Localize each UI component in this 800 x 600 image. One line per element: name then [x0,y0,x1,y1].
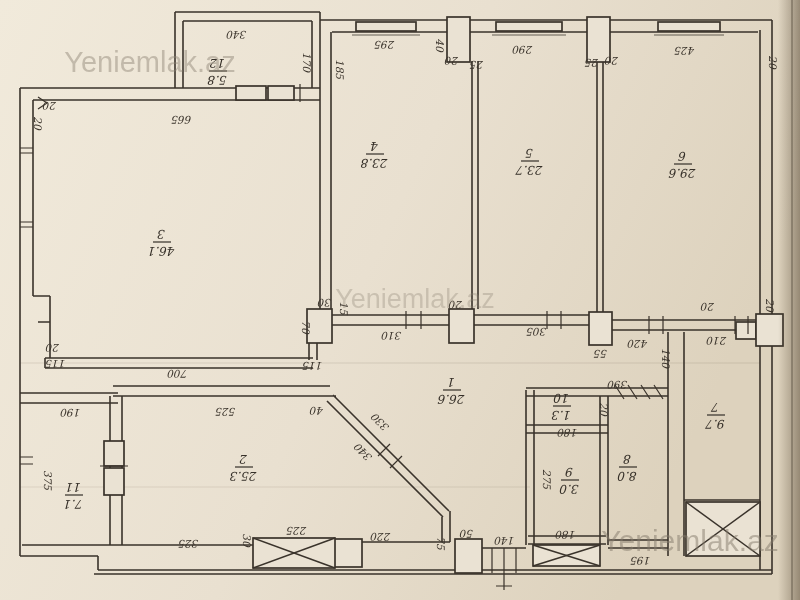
pillar-entrance [455,539,482,573]
door-room12-a [236,86,266,100]
dim-label-700: 700 [167,368,188,380]
svg-text:11: 11 [66,480,81,494]
dim-label-75: 75 [435,536,447,551]
dim-label-20: 20 [598,402,610,417]
dim-label-55: 55 [593,348,608,360]
dim-label-305: 305 [526,326,547,338]
svg-text:4: 4 [371,139,379,153]
dim-label-220: 220 [370,531,391,543]
pillar-corridor-3 [589,312,612,345]
dim-label-170: 170 [301,52,313,73]
dim-label-115: 115 [302,360,323,372]
door-bottom-wall [334,539,362,567]
dim-label-420: 420 [627,338,648,350]
door-room12-b [268,86,294,100]
dim-label-20: 20 [767,55,779,70]
dim-label-275: 275 [541,469,553,490]
dim-label-180: 180 [557,427,578,439]
window-room4 [356,22,416,31]
scanned-floor-plan: 126.6225.3346.1423.8523.7629.679.788.093… [0,0,800,600]
svg-text:8.0: 8.0 [617,469,637,483]
dim-label-310: 310 [381,330,402,342]
dim-label-325: 325 [178,538,199,550]
dim-label-40: 40 [309,405,324,417]
dim-label-20: 20 [45,342,60,354]
window-room5 [496,22,562,31]
dim-label-20: 20 [700,301,715,313]
dim-label-20: 20 [604,55,619,67]
dim-label-115: 115 [45,358,66,370]
dim-label-140: 140 [660,348,672,369]
svg-text:25.3: 25.3 [229,469,257,483]
dim-label-20: 20 [42,100,57,112]
room-label-11: 117.1 [64,480,83,511]
dim-label-185: 185 [334,59,346,80]
watermark-bottom-right: Yeniemlak.az [601,524,778,557]
svg-text:46.1: 46.1 [149,244,176,258]
dim-label-180: 180 [555,529,576,541]
dim-label-295: 295 [374,39,395,51]
svg-text:23.8: 23.8 [360,156,388,170]
dim-label-30: 30 [317,297,332,309]
dim-label-390: 390 [607,379,628,391]
svg-text:29.6: 29.6 [668,166,696,180]
watermark-center: Yeniemlak.az [335,284,495,314]
dim-label-340: 340 [226,29,247,41]
page-edge-shadow [778,0,800,600]
dim-label-375: 375 [42,470,54,491]
svg-text:7.1: 7.1 [64,497,83,511]
dim-label-225: 225 [286,525,307,537]
shaft-box-bottom-left [253,538,335,568]
dim-label-30: 30 [241,533,253,548]
dim-label-210: 210 [706,335,727,347]
dim-label-190: 190 [60,407,81,419]
window-room6 [658,22,720,31]
shaft-box-bottom-center [533,545,600,566]
dim-label-50: 50 [459,528,474,540]
dim-label-20: 20 [444,55,459,67]
dim-label-70: 70 [300,320,312,335]
door-room11-a [104,441,124,466]
dim-label-140: 140 [494,535,515,547]
dim-label-425: 425 [674,45,695,57]
svg-text:26.6: 26.6 [437,392,465,406]
dim-label-665: 665 [171,114,192,126]
dim-label-20: 20 [32,116,44,131]
dim-label-525: 525 [215,406,236,418]
svg-text:3.0: 3.0 [559,482,579,496]
pillar-corridor-2 [449,309,474,343]
dim-label-20: 20 [764,298,776,313]
dim-label-25: 25 [584,57,599,69]
svg-text:1: 1 [448,375,456,389]
svg-text:9.7: 9.7 [705,417,725,431]
svg-text:23.7: 23.7 [515,163,543,177]
watermark-top-left: Yeniemlak.az [64,46,235,78]
dim-label-25: 25 [469,59,484,71]
door-room11-b [104,468,124,495]
door-leaf-right [736,322,756,339]
svg-text:1.3: 1.3 [551,408,571,422]
svg-text:10: 10 [553,391,570,405]
dim-label-290: 290 [512,44,533,56]
dim-label-40: 40 [434,38,446,53]
floor-plan-svg: 126.6225.3346.1423.8523.7629.679.788.093… [0,0,800,600]
